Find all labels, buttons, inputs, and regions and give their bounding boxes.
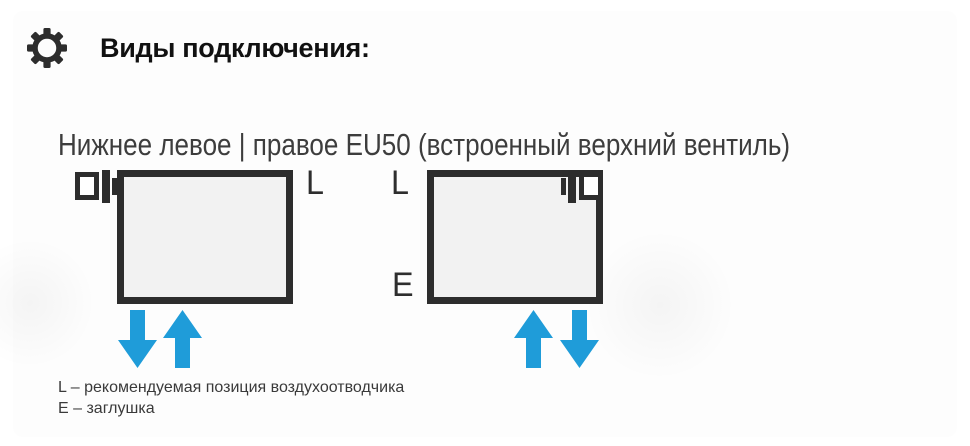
flow-down-arrow-icon — [118, 310, 157, 368]
legend-line-air-vent: L – рекомендуемая позиция воздухоотводчи… — [58, 377, 404, 398]
flow-up-arrow-icon — [163, 310, 202, 368]
plug-position-label: E — [392, 268, 414, 302]
page-title: Виды подключения: — [100, 33, 370, 64]
connection-types-panel: Виды подключения: Нижнее левое | правое … — [0, 0, 970, 446]
legend: L – рекомендуемая позиция воздухоотводчи… — [58, 377, 404, 419]
connection-subtitle: Нижнее левое | правое EU50 (встроенный в… — [58, 127, 790, 163]
air-vent-position-label: L — [391, 166, 409, 200]
background-blob-right — [585, 230, 735, 380]
legend-line-plug: E – заглушка — [58, 398, 404, 419]
air-vent-valve-icon — [75, 170, 117, 203]
flow-down-arrow-icon — [560, 310, 599, 368]
radiator-left-diagram — [117, 170, 293, 304]
air-vent-valve-icon — [561, 170, 603, 203]
air-vent-position-label: L — [306, 166, 324, 200]
gear-icon — [25, 26, 69, 70]
flow-up-arrow-icon — [514, 310, 553, 368]
